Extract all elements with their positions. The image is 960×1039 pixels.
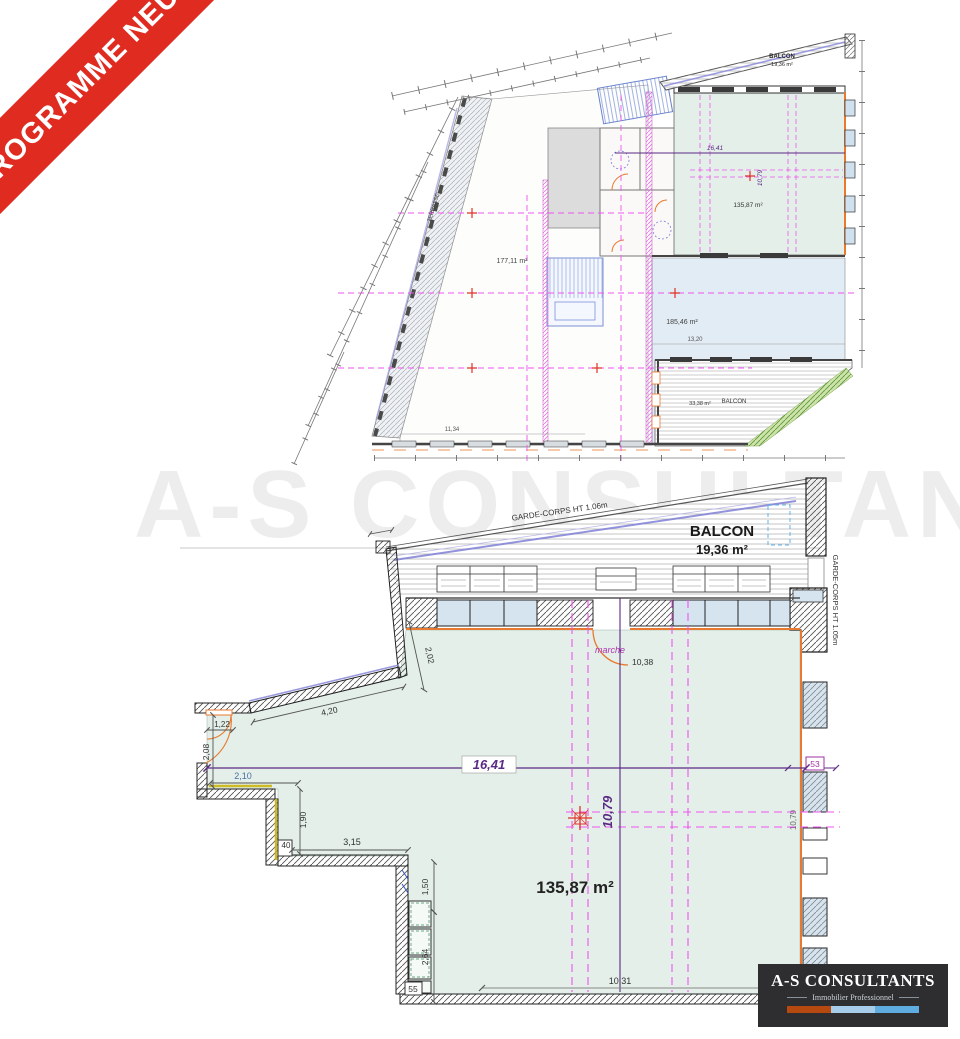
room-depth-dim: 10,79 — [600, 795, 615, 828]
window-spec-tables — [437, 566, 770, 592]
dim-210: 2,10 — [234, 771, 252, 781]
programme-neuf-ribbon: PROGRAMME NEUF — [0, 0, 256, 256]
ov-balcony-top-area: 19,36 m² — [771, 62, 793, 68]
ov-dim-bottom: 11,34 — [445, 427, 460, 433]
balcony-top: BALCON 19,36 m² — [660, 34, 855, 90]
ov-room-left-area: 177,11 m² — [497, 258, 529, 265]
badge-55: 55 — [408, 984, 418, 994]
ribbon-label: PROGRAMME NEUF — [0, 0, 199, 199]
dim-1031: 10,31 — [609, 976, 632, 986]
ov-balcony-top-label: BALCON — [769, 54, 795, 60]
guardrail-right-label: GARDE-CORPS HT 1.05m — [831, 555, 840, 646]
badge-53: 53 — [810, 759, 820, 769]
dim-150: 1,50 — [420, 878, 430, 895]
balcony-label: BALCON — [690, 523, 754, 540]
core-wall — [646, 92, 652, 445]
window-wall — [406, 598, 800, 629]
core-wall — [543, 180, 548, 445]
floor-plan-detail: GARDE-CORPS HT 1.06m BALCON 19,36 m² GAR… — [190, 472, 840, 1034]
ov-dim-width: 16,41 — [707, 145, 724, 152]
floor-plan-overview: 16,41 10,79 135,87 m² BALCON 19,36 m² 33… — [280, 8, 880, 486]
ov-room-right-area: 185,46 m² — [666, 319, 698, 326]
door-dim: 10,38 — [632, 657, 654, 667]
ov-dim-depth: 10,79 — [757, 169, 764, 186]
dim-40: 40 — [282, 841, 291, 850]
agency-tagline: Immobilier Professionnel — [812, 993, 894, 1002]
ov-balcony-corner-label: BALCON — [722, 399, 747, 405]
logo-color-bar — [787, 1006, 919, 1013]
dim-122: 1,22 — [214, 720, 230, 729]
agency-name: A-S CONSULTANTS — [758, 971, 948, 991]
agency-logo: A-S CONSULTANTS Immobilier Professionnel — [758, 964, 948, 1027]
balcony-corner: 33,38 m² BALCON — [652, 357, 853, 446]
dim-264: 2,64 — [420, 948, 430, 965]
dim-208: 2,08 — [201, 743, 211, 760]
room-width-dim: 16,41 — [473, 757, 506, 772]
ov-dim-right: 13,20 — [687, 337, 703, 343]
ov-green-area: 135,87 m² — [733, 202, 763, 209]
dim-315: 3,15 — [343, 837, 361, 847]
room-area-label: 135,87 m² — [536, 878, 614, 897]
dim-190: 1,90 — [298, 811, 308, 828]
balcony-area: 19,36 m² — [696, 542, 749, 557]
ov-balcony-corner-area: 33,38 m² — [689, 401, 711, 407]
